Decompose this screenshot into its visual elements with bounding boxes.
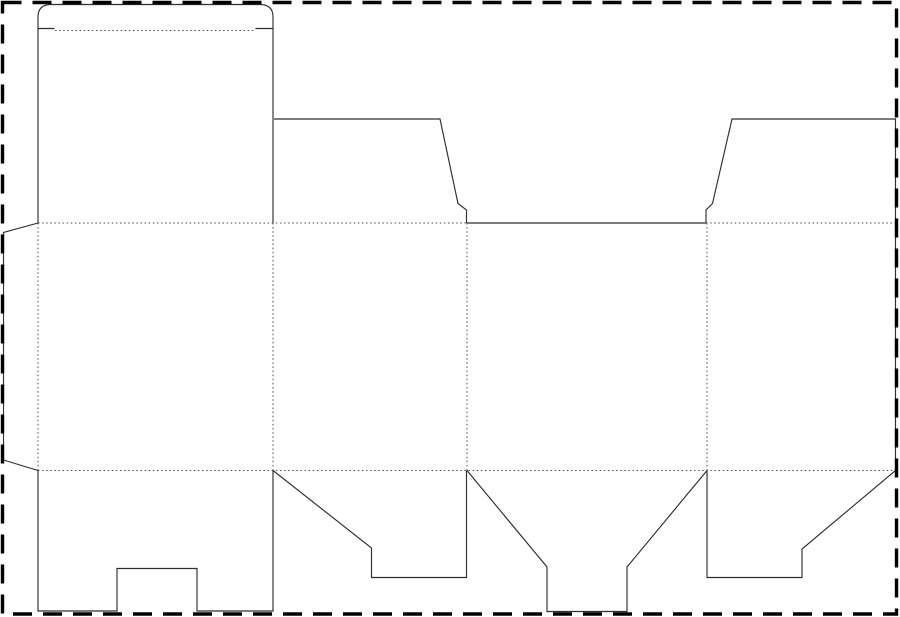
dieline-artboard: [0, 0, 900, 617]
canvas-background: [0, 0, 900, 617]
dieline-drawing: [0, 0, 900, 617]
